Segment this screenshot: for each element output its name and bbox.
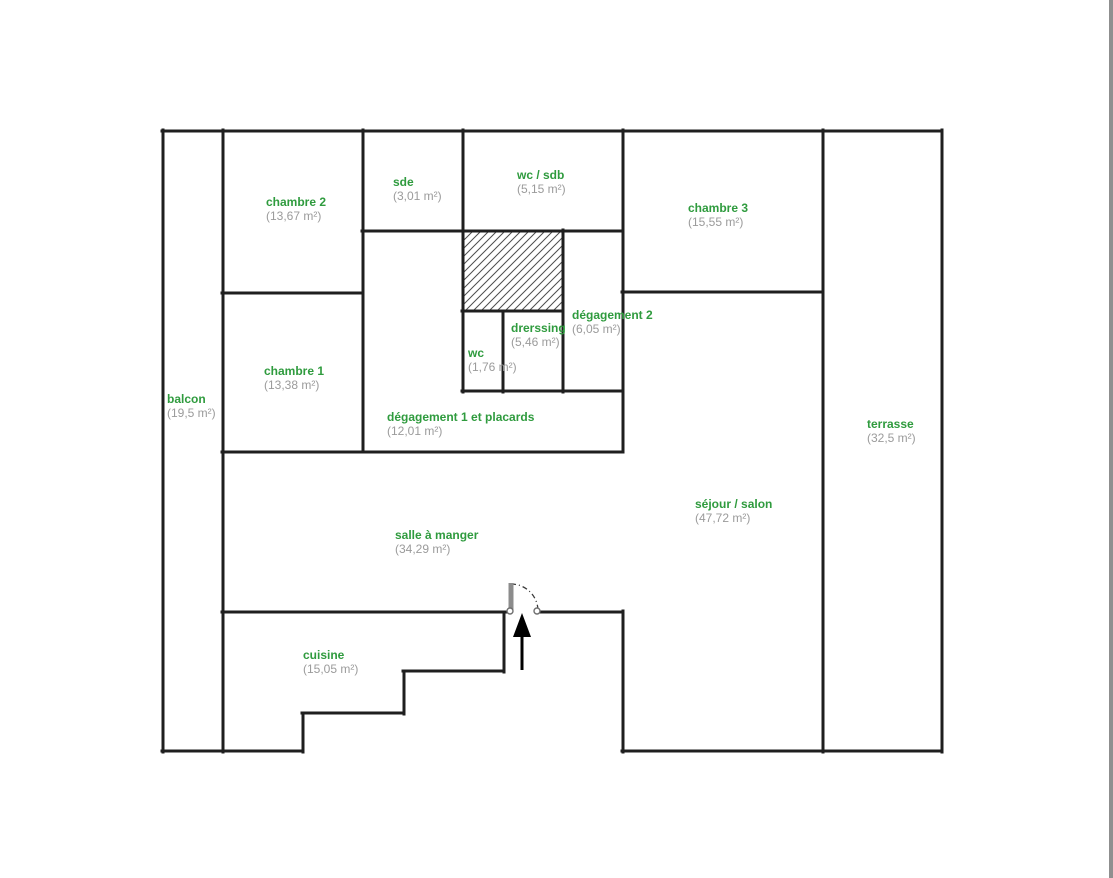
- room-area: (47,72 m²): [695, 511, 772, 525]
- room-label-wc: wc (1,76 m²): [468, 346, 517, 374]
- room-area: (32,5 m²): [867, 431, 916, 445]
- room-label-salle-a-manger: salle à manger (34,29 m²): [395, 528, 478, 556]
- hatched-area: [464, 232, 562, 310]
- room-area: (19,5 m²): [167, 406, 216, 420]
- room-name: chambre 3: [688, 201, 748, 215]
- room-name: dégagement 2: [572, 308, 653, 322]
- room-label-balcon: balcon (19,5 m²): [167, 392, 216, 420]
- room-label-cuisine: cuisine (15,05 m²): [303, 648, 358, 676]
- room-name: wc / sdb: [517, 168, 566, 182]
- room-area: (3,01 m²): [393, 189, 442, 203]
- room-area: (34,29 m²): [395, 542, 478, 556]
- door-arc: [511, 584, 538, 611]
- room-area: (13,67 m²): [266, 209, 326, 223]
- room-area: (15,55 m²): [688, 215, 748, 229]
- room-label-drerssing: drerssing (5,46 m²): [511, 321, 566, 349]
- room-name: sde: [393, 175, 442, 189]
- room-area: (15,05 m²): [303, 662, 358, 676]
- room-name: balcon: [167, 392, 216, 406]
- room-label-chambre-2: chambre 2 (13,67 m²): [266, 195, 326, 223]
- room-name: séjour / salon: [695, 497, 772, 511]
- floorplan-drawing: [0, 0, 1113, 878]
- room-area: (6,05 m²): [572, 322, 653, 336]
- room-label-degagement-2: dégagement 2 (6,05 m²): [572, 308, 653, 336]
- door-swing-icon: [507, 583, 540, 614]
- room-name: dégagement 1 et placards: [387, 410, 534, 424]
- room-name: salle à manger: [395, 528, 478, 542]
- room-name: wc: [468, 346, 517, 360]
- room-label-terrasse: terrasse (32,5 m²): [867, 417, 916, 445]
- room-name: chambre 2: [266, 195, 326, 209]
- room-name: chambre 1: [264, 364, 324, 378]
- screen-edge-strip: [1109, 0, 1113, 878]
- room-name: drerssing: [511, 321, 566, 335]
- room-label-chambre-1: chambre 1 (13,38 m²): [264, 364, 324, 392]
- room-label-degagement-1: dégagement 1 et placards (12,01 m²): [387, 410, 534, 438]
- room-name: cuisine: [303, 648, 358, 662]
- room-area: (5,15 m²): [517, 182, 566, 196]
- room-area: (5,46 m²): [511, 335, 566, 349]
- entrance-arrow-head: [513, 613, 531, 637]
- room-area: (13,38 m²): [264, 378, 324, 392]
- room-label-sde: sde (3,01 m²): [393, 175, 442, 203]
- room-label-sejour-salon: séjour / salon (47,72 m²): [695, 497, 772, 525]
- door-hinge: [534, 608, 540, 614]
- room-area: (1,76 m²): [468, 360, 517, 374]
- room-name: terrasse: [867, 417, 916, 431]
- arrow-up-icon: [513, 613, 531, 670]
- door-hinge: [507, 608, 513, 614]
- room-area: (12,01 m²): [387, 424, 534, 438]
- room-label-chambre-3: chambre 3 (15,55 m²): [688, 201, 748, 229]
- room-label-wc-sdb: wc / sdb (5,15 m²): [517, 168, 566, 196]
- floorplan-page: balcon (19,5 m²) chambre 2 (13,67 m²) sd…: [0, 0, 1113, 878]
